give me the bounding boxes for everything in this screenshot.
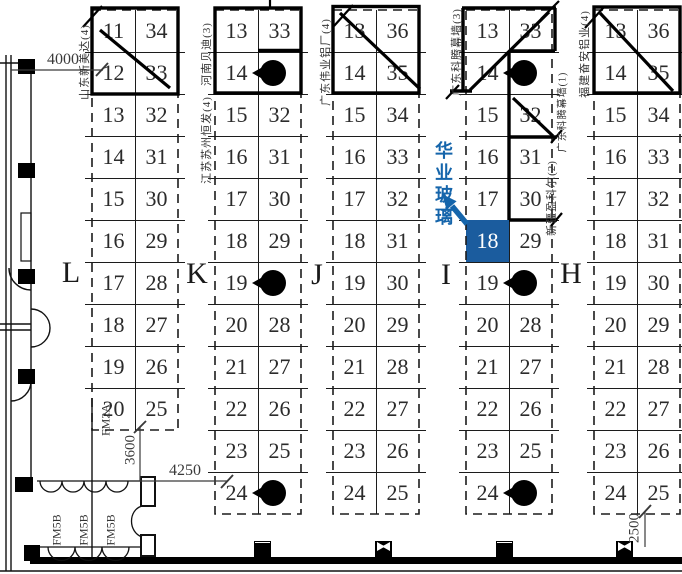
booth-cell-J-27[interactable]: 27: [376, 388, 419, 430]
booth-cell-I-25[interactable]: 25: [509, 430, 552, 472]
booth-cell-K-30[interactable]: 30: [258, 178, 301, 220]
booth-cell-L-25[interactable]: 25: [135, 388, 178, 430]
booth-cell-H-33[interactable]: 33: [637, 136, 680, 178]
booth-cell-H-29[interactable]: 29: [637, 304, 680, 346]
booth-column-H: 1336143515341633173218311930202921282227…: [594, 10, 680, 514]
structural-pillar-icon: [511, 60, 537, 86]
booth-cell-H-28[interactable]: 28: [637, 346, 680, 388]
booth-cell-L-17[interactable]: 17: [92, 262, 135, 304]
floorplan-canvas: 1134123313321431153016291728182719262025…: [0, 0, 682, 574]
booth-cell-J-23[interactable]: 23: [333, 430, 376, 472]
pillar-marker-icon: [503, 278, 512, 288]
dimension-text: 3600: [123, 435, 140, 465]
booth-cell-L-31[interactable]: 31: [135, 136, 178, 178]
booth-cell-I-33[interactable]: 33: [509, 10, 552, 52]
booth-cell-H-21[interactable]: 21: [594, 346, 637, 388]
booth-cell-L-11[interactable]: 11: [92, 10, 135, 52]
booth-cell-J-34[interactable]: 34: [376, 94, 419, 136]
booth-cell-I-15[interactable]: 15: [466, 94, 509, 136]
booth-cell-J-35[interactable]: 35: [376, 52, 419, 94]
booth-cell-I-16[interactable]: 16: [466, 136, 509, 178]
booth-cell-H-30[interactable]: 30: [637, 262, 680, 304]
booth-cell-H-34[interactable]: 34: [637, 94, 680, 136]
booth-cell-L-32[interactable]: 32: [135, 94, 178, 136]
booth-cell-L-27[interactable]: 27: [135, 304, 178, 346]
booth-cell-H-31[interactable]: 31: [637, 220, 680, 262]
booth-cell-H-32[interactable]: 32: [637, 178, 680, 220]
booth-cell-H-27[interactable]: 27: [637, 388, 680, 430]
booth-cell-I-22[interactable]: 22: [466, 388, 509, 430]
booth-cell-H-24[interactable]: 24: [594, 472, 637, 514]
booth-cell-J-28[interactable]: 28: [376, 346, 419, 388]
booth-cell-I-20[interactable]: 20: [466, 304, 509, 346]
booth-cell-L-12[interactable]: 12: [92, 52, 135, 94]
pillar-marker-icon: [503, 488, 512, 498]
dimension-text: 2500: [627, 513, 644, 543]
exhibitor-label: 广东科腾幕墙(1): [554, 72, 569, 153]
booth-cell-I-21[interactable]: 21: [466, 346, 509, 388]
booth-cell-J-18[interactable]: 18: [333, 220, 376, 262]
exhibitor-label: 福建奋安铝业(4): [576, 10, 592, 98]
exhibitor-label: 新疆盈科尔(2): [543, 160, 559, 236]
booth-cell-J-25[interactable]: 25: [376, 472, 419, 514]
booth-cell-J-26[interactable]: 26: [376, 430, 419, 472]
booth-cell-I-23[interactable]: 23: [466, 430, 509, 472]
booth-cell-L-19[interactable]: 19: [92, 346, 135, 388]
exhibitor-label: 广东科腾幕墙(3): [448, 8, 464, 96]
exhibitor-label: 江苏苏州恒发(4): [198, 96, 214, 184]
booth-cell-I-28[interactable]: 28: [509, 304, 552, 346]
fire-door-label: FM5B: [104, 514, 119, 545]
booth-column-L: 1134123313321431153016291728182719262025: [92, 10, 178, 430]
booth-cell-J-14[interactable]: 14: [333, 52, 376, 94]
booth-cell-J-32[interactable]: 32: [376, 178, 419, 220]
booth-cell-K-15[interactable]: 15: [215, 94, 258, 136]
booth-cell-K-25[interactable]: 25: [258, 430, 301, 472]
dimension-text: 4250: [169, 462, 201, 480]
booth-cell-H-36[interactable]: 36: [637, 10, 680, 52]
pillar-marker-icon: [252, 488, 261, 498]
structural-pillar-icon: [260, 480, 286, 506]
fire-door-label: FM2A: [99, 404, 114, 436]
booth-cell-H-25[interactable]: 25: [637, 472, 680, 514]
booth-cell-J-17[interactable]: 17: [333, 178, 376, 220]
booth-cell-K-28[interactable]: 28: [258, 304, 301, 346]
booth-cell-H-14[interactable]: 14: [594, 52, 637, 94]
booth-cell-K-16[interactable]: 16: [215, 136, 258, 178]
booth-cell-H-19[interactable]: 19: [594, 262, 637, 304]
booth-cell-L-34[interactable]: 34: [135, 10, 178, 52]
booth-cell-L-33[interactable]: 33: [135, 52, 178, 94]
structural-pillar-icon: [260, 270, 286, 296]
exhibitor-label: 广东伟业铝厂(4): [317, 18, 333, 106]
booth-cell-K-33[interactable]: 33: [258, 10, 301, 52]
column-letter-I: I: [441, 258, 451, 292]
booth-cell-L-13[interactable]: 13: [92, 94, 135, 136]
pillar-marker-icon: [252, 278, 261, 288]
structural-pillar-icon: [511, 270, 537, 296]
booth-cell-L-15[interactable]: 15: [92, 178, 135, 220]
booth-cell-L-30[interactable]: 30: [135, 178, 178, 220]
exhibitor-label: 河南贝迪(3): [198, 22, 214, 86]
column-letter-J: J: [311, 258, 323, 292]
booth-cell-H-20[interactable]: 20: [594, 304, 637, 346]
booth-cell-J-30[interactable]: 30: [376, 262, 419, 304]
booth-cell-J-22[interactable]: 22: [333, 388, 376, 430]
booth-cell-L-14[interactable]: 14: [92, 136, 135, 178]
booth-cell-H-17[interactable]: 17: [594, 178, 637, 220]
booth-cell-L-26[interactable]: 26: [135, 346, 178, 388]
booth-cell-I-18[interactable]: 18: [466, 220, 509, 262]
booth-cell-I-17[interactable]: 17: [466, 178, 509, 220]
booth-cell-J-29[interactable]: 29: [376, 304, 419, 346]
booth-cell-H-26[interactable]: 26: [637, 430, 680, 472]
fire-door-label: FM5B: [50, 514, 65, 545]
booth-cell-L-16[interactable]: 16: [92, 220, 135, 262]
booth-cell-K-18[interactable]: 18: [215, 220, 258, 262]
pillar-marker-icon: [252, 68, 261, 78]
pillar-marker-icon: [503, 68, 512, 78]
booth-cell-H-18[interactable]: 18: [594, 220, 637, 262]
booth-cell-L-28[interactable]: 28: [135, 262, 178, 304]
booth-cell-I-13[interactable]: 13: [466, 10, 509, 52]
fire-door-label: FM5B: [77, 514, 92, 545]
booth-cell-H-16[interactable]: 16: [594, 136, 637, 178]
booth-cell-J-21[interactable]: 21: [333, 346, 376, 388]
booth-cell-J-31[interactable]: 31: [376, 220, 419, 262]
booth-cell-J-16[interactable]: 16: [333, 136, 376, 178]
column-letter-L: L: [62, 256, 80, 290]
booth-cell-I-32[interactable]: 32: [509, 94, 552, 136]
booth-cell-K-17[interactable]: 17: [215, 178, 258, 220]
booth-cell-J-19[interactable]: 19: [333, 262, 376, 304]
booth-cell-K-22[interactable]: 22: [215, 388, 258, 430]
booth-cell-K-31[interactable]: 31: [258, 136, 301, 178]
booth-cell-J-36[interactable]: 36: [376, 10, 419, 52]
booth-cell-H-22[interactable]: 22: [594, 388, 637, 430]
booth-cell-K-29[interactable]: 29: [258, 220, 301, 262]
booth-cell-H-13[interactable]: 13: [594, 10, 637, 52]
booth-cell-K-20[interactable]: 20: [215, 304, 258, 346]
booth-cell-K-32[interactable]: 32: [258, 94, 301, 136]
booth-cell-K-26[interactable]: 26: [258, 388, 301, 430]
booth-cell-J-15[interactable]: 15: [333, 94, 376, 136]
booth-cell-J-24[interactable]: 24: [333, 472, 376, 514]
dimension-text: 4000: [47, 51, 79, 69]
booth-column-J: 1336143515341633173218311930202921282227…: [333, 10, 419, 514]
structural-pillar-icon: [260, 60, 286, 86]
booth-cell-I-27[interactable]: 27: [509, 346, 552, 388]
booth-cell-K-13[interactable]: 13: [215, 10, 258, 52]
booth-cell-K-27[interactable]: 27: [258, 346, 301, 388]
booth-cell-L-29[interactable]: 29: [135, 220, 178, 262]
column-letter-H: H: [560, 257, 582, 291]
booth-cell-J-13[interactable]: 13: [333, 10, 376, 52]
booth-column-I: 1333141532163117301829192028212722262325…: [466, 10, 552, 514]
booth-column-K: 1333141532163117301829192028212722262325…: [215, 10, 301, 514]
booth-cell-J-20[interactable]: 20: [333, 304, 376, 346]
structural-pillar-icon: [511, 480, 537, 506]
booth-cell-K-23[interactable]: 23: [215, 430, 258, 472]
booth-cell-J-33[interactable]: 33: [376, 136, 419, 178]
booth-cell-I-26[interactable]: 26: [509, 388, 552, 430]
callout-huaye-glass-label: 华业玻璃: [430, 141, 456, 229]
booth-cell-H-23[interactable]: 23: [594, 430, 637, 472]
booth-cell-H-15[interactable]: 15: [594, 94, 637, 136]
booth-cell-K-21[interactable]: 21: [215, 346, 258, 388]
booth-cell-H-35[interactable]: 35: [637, 52, 680, 94]
column-letter-K: K: [186, 257, 208, 291]
booth-cell-L-18[interactable]: 18: [92, 304, 135, 346]
